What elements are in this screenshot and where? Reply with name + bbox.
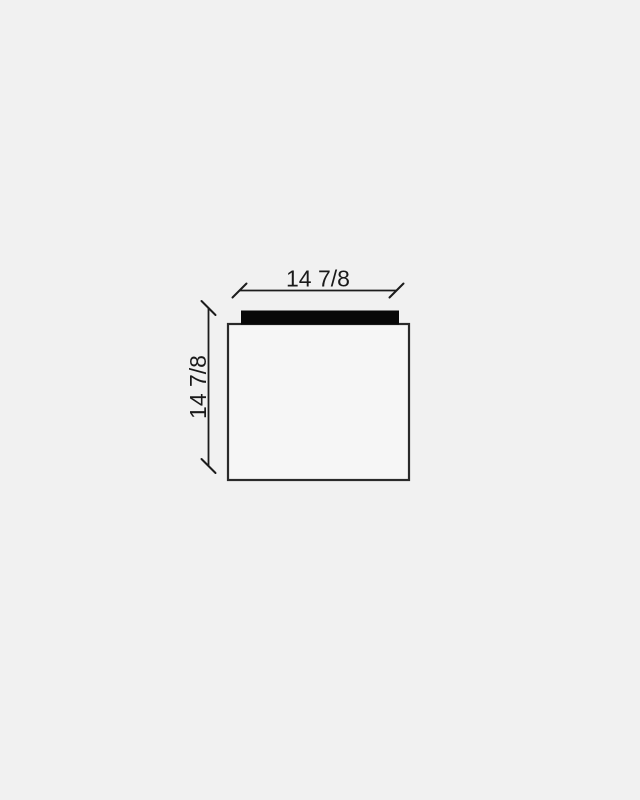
width-dimension: 14 7/8 bbox=[233, 266, 404, 298]
panel-top-cap bbox=[241, 311, 399, 325]
canvas: { "page": { "background_color": "#f1f1f1… bbox=[0, 0, 640, 800]
height-dimension: 14 7/8 bbox=[185, 301, 216, 473]
width-dimension-label: 14 7/8 bbox=[286, 266, 350, 292]
panel-body bbox=[228, 324, 409, 480]
height-dimension-label: 14 7/8 bbox=[185, 355, 211, 419]
dimension-drawing: 14 7/8 14 7/8 bbox=[0, 0, 640, 800]
panel bbox=[228, 311, 409, 481]
